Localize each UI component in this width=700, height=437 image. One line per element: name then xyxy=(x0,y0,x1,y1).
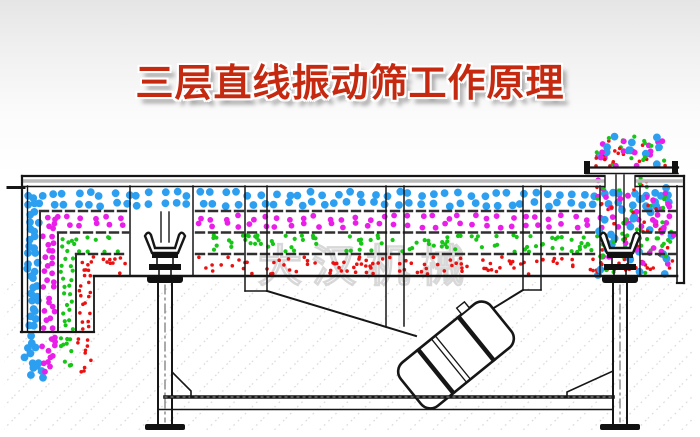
particle-dot-green xyxy=(253,242,257,246)
particle-dot-magenta xyxy=(274,215,280,221)
particle-dot-green xyxy=(551,246,555,250)
particle-dot-green xyxy=(359,242,363,246)
particle-dot-blue xyxy=(544,190,552,198)
particle-dot-magenta xyxy=(667,213,673,219)
particle-dot-blue xyxy=(653,134,661,142)
particle-dot-red xyxy=(481,258,485,262)
particle-dot-green xyxy=(349,249,353,253)
particle-dot-red xyxy=(553,257,557,261)
particle-dot-red xyxy=(423,263,427,267)
particle-dot-green xyxy=(470,234,474,238)
particle-dot-blue xyxy=(294,192,302,200)
particle-dot-blue xyxy=(270,201,278,209)
particle-dot-green xyxy=(214,236,218,240)
particle-dot-magenta xyxy=(235,224,241,230)
particle-dot-green xyxy=(63,360,67,364)
particle-dot-magenta xyxy=(46,348,52,354)
particle-dot-green xyxy=(632,135,636,139)
particle-dot-green xyxy=(314,242,318,246)
particle-dot-red xyxy=(425,267,429,271)
particle-dot-blue xyxy=(250,201,258,209)
particle-dot-green xyxy=(67,318,71,322)
particle-dot-green xyxy=(668,240,672,244)
particle-dot-green xyxy=(69,278,73,282)
particle-dot-green xyxy=(511,233,515,237)
particle-dot-blue xyxy=(39,374,47,382)
particle-dot-green xyxy=(635,227,639,231)
particle-dot-green xyxy=(415,241,419,245)
particle-dot-blue xyxy=(162,199,170,207)
particle-dot-green xyxy=(596,197,600,201)
particle-dot-red xyxy=(459,257,463,261)
particle-dot-green xyxy=(69,349,73,353)
particle-dot-red xyxy=(87,295,91,299)
particle-dot-blue xyxy=(321,201,329,209)
particle-dot-blue xyxy=(628,139,636,147)
particle-dot-green xyxy=(60,264,64,268)
particle-dot-green xyxy=(300,234,304,238)
particle-dot-green xyxy=(380,241,384,245)
particle-dot-red xyxy=(113,257,117,261)
particle-dot-green xyxy=(71,327,75,331)
particle-dot-green xyxy=(624,218,628,222)
particle-dot-red xyxy=(86,263,90,267)
particle-dot-blue xyxy=(27,350,35,358)
particle-dot-red xyxy=(81,327,85,331)
particle-dot-red xyxy=(331,261,335,265)
particle-dot-green xyxy=(582,235,586,239)
particle-dot-red xyxy=(342,261,346,265)
particle-dot-blue xyxy=(647,209,655,217)
particle-dot-red xyxy=(482,267,486,271)
particle-dot-red xyxy=(498,266,502,270)
particle-dot-magenta xyxy=(368,217,374,223)
particle-dot-magenta xyxy=(209,224,215,230)
particle-dot-red xyxy=(204,266,208,270)
particle-dot-red xyxy=(371,262,375,266)
particle-dot-green xyxy=(583,245,587,249)
particle-dot-magenta xyxy=(271,224,277,230)
particle-dot-magenta xyxy=(558,221,564,227)
particle-dot-blue xyxy=(533,189,541,197)
particle-dot-green xyxy=(74,237,78,241)
particle-dot-green xyxy=(259,242,263,246)
particle-dot-magenta xyxy=(107,222,113,228)
particle-dot-magenta xyxy=(484,223,490,229)
particle-dot-blue xyxy=(372,191,380,199)
particle-dot-red xyxy=(560,257,564,261)
particle-dot-red xyxy=(591,269,595,273)
particle-dot-red xyxy=(603,158,607,162)
particle-dot-green xyxy=(94,238,98,242)
particle-dot-magenta xyxy=(316,224,322,230)
particle-dot-red xyxy=(82,369,86,373)
particle-dot-green xyxy=(660,220,664,224)
particle-dot-red xyxy=(295,270,299,274)
particle-dot-red xyxy=(613,149,617,153)
particle-dot-magenta xyxy=(196,221,202,227)
particle-dot-blue xyxy=(567,199,575,207)
particle-dot-red xyxy=(388,256,392,260)
particle-dot-blue xyxy=(112,189,120,197)
vibrating-screen-diagram: 大汉机械 xyxy=(0,0,700,437)
particle-dot-magenta xyxy=(603,194,609,200)
particle-dot-magenta xyxy=(429,213,435,219)
particle-dot-red xyxy=(571,263,575,267)
particle-dot-red xyxy=(337,266,341,270)
particle-dot-red xyxy=(79,284,83,288)
particle-dot-magenta xyxy=(47,364,53,370)
particle-dot-blue xyxy=(35,219,43,227)
particle-dot-magenta xyxy=(454,213,460,219)
particle-dot-magenta xyxy=(49,270,55,276)
particle-dot-green xyxy=(643,155,647,159)
particle-dot-blue xyxy=(31,249,39,257)
particle-dot-red xyxy=(668,266,672,270)
particle-dot-red xyxy=(88,312,92,316)
particle-dot-green xyxy=(67,308,71,312)
particle-dot-red xyxy=(86,344,90,348)
particle-dot-green xyxy=(474,238,478,242)
particle-dot-blue xyxy=(132,192,140,200)
particle-dot-blue xyxy=(441,189,449,197)
particle-dot-magenta xyxy=(207,217,213,223)
particle-dot-green xyxy=(106,235,110,239)
particle-dot-red xyxy=(671,259,675,263)
particle-dot-magenta xyxy=(617,196,623,202)
particle-dot-green xyxy=(249,241,253,245)
particle-dot-magenta xyxy=(51,240,57,246)
particle-dot-green xyxy=(68,292,72,296)
particle-dot-blue xyxy=(651,189,659,197)
particle-dot-blue xyxy=(285,198,293,206)
particle-dot-green xyxy=(270,239,274,243)
particle-dot-red xyxy=(595,156,599,160)
particle-dot-magenta xyxy=(535,222,541,228)
particle-dot-red xyxy=(398,262,402,266)
particle-dot-red xyxy=(519,262,523,266)
particle-dot-magenta xyxy=(45,242,51,248)
particle-dot-blue xyxy=(589,201,597,209)
particle-dot-green xyxy=(643,271,647,275)
particle-dot-blue xyxy=(200,200,208,208)
particle-dot-green xyxy=(528,234,532,238)
particle-dot-green xyxy=(257,238,261,242)
particle-dot-green xyxy=(358,248,362,252)
particle-dot-blue xyxy=(395,201,403,209)
particle-dot-green xyxy=(69,363,73,367)
particle-dot-magenta xyxy=(52,217,58,223)
particle-dot-green xyxy=(63,319,67,323)
particle-dot-red xyxy=(376,261,380,265)
particle-dot-magenta xyxy=(498,225,504,231)
particle-dot-red xyxy=(83,274,87,278)
particle-dot-magenta xyxy=(287,217,293,223)
particle-dot-red xyxy=(237,258,241,262)
particle-dot-blue xyxy=(31,233,39,241)
particle-dot-magenta xyxy=(40,284,46,290)
particle-dot-red xyxy=(443,269,447,273)
particle-dot-magenta xyxy=(509,224,515,230)
particle-dot-blue xyxy=(208,200,216,208)
particle-dot-blue xyxy=(222,188,230,196)
particle-dot-red xyxy=(313,261,317,265)
particle-dot-green xyxy=(68,337,72,341)
particle-dot-magenta xyxy=(50,248,56,254)
particle-dot-green xyxy=(311,234,315,238)
particle-dot-red xyxy=(570,258,574,262)
particle-dot-blue xyxy=(446,203,454,211)
particle-dot-red xyxy=(119,256,123,260)
particle-dot-magenta xyxy=(433,225,439,231)
particle-dot-blue xyxy=(335,191,343,199)
particle-dot-green xyxy=(292,249,296,253)
particle-dot-green xyxy=(595,150,599,154)
particle-dot-blue xyxy=(32,315,40,323)
particle-dot-green xyxy=(229,241,233,245)
particle-dot-magenta xyxy=(377,221,383,227)
particle-dot-red xyxy=(282,263,286,267)
particle-dot-magenta xyxy=(52,335,58,341)
particle-dot-blue xyxy=(30,322,38,330)
particle-dot-green xyxy=(570,238,574,242)
particle-dot-magenta xyxy=(391,213,397,219)
particle-dot-red xyxy=(381,257,385,261)
particle-dot-green xyxy=(71,256,75,260)
particle-dot-red xyxy=(410,261,414,265)
particle-dot-green xyxy=(410,246,414,250)
particle-dot-red xyxy=(86,320,90,324)
particle-dot-blue xyxy=(307,188,315,196)
particle-dot-blue xyxy=(384,192,392,200)
particle-dot-blue xyxy=(174,188,182,196)
particle-dot-red xyxy=(354,270,358,274)
particle-dot-red xyxy=(83,301,87,305)
particle-dot-magenta xyxy=(42,268,48,274)
particle-dot-red xyxy=(364,264,368,268)
particle-dot-green xyxy=(662,159,666,163)
particle-dot-green xyxy=(60,244,64,248)
particle-dot-blue xyxy=(133,202,141,210)
particle-dot-blue xyxy=(629,201,637,209)
particle-dot-red xyxy=(78,311,82,315)
particle-dot-blue xyxy=(357,191,365,199)
particle-dot-red xyxy=(105,260,109,264)
particle-dot-blue xyxy=(509,202,517,210)
particle-dot-blue xyxy=(601,216,609,224)
particle-dot-blue xyxy=(482,192,490,200)
particle-dot-green xyxy=(661,206,665,210)
particle-dot-red xyxy=(352,266,356,270)
particle-dot-green xyxy=(212,248,216,252)
particle-dot-blue xyxy=(520,190,528,198)
particle-dot-magenta xyxy=(77,215,83,221)
particle-dot-green xyxy=(556,235,560,239)
particle-dot-red xyxy=(87,325,91,329)
particle-dot-magenta xyxy=(532,214,538,220)
particle-dot-magenta xyxy=(310,213,316,219)
particle-dot-blue xyxy=(405,199,413,207)
particle-dot-blue xyxy=(95,192,103,200)
particle-dot-magenta xyxy=(546,224,552,230)
particle-dot-green xyxy=(253,234,257,238)
particle-dot-magenta xyxy=(49,255,55,261)
particle-dot-red xyxy=(436,263,440,267)
particle-dot-blue xyxy=(343,198,351,206)
particle-dot-red xyxy=(486,269,490,273)
particle-dot-green xyxy=(64,323,68,327)
particle-dot-green xyxy=(423,238,427,242)
particle-dot-blue xyxy=(308,198,316,206)
particle-dot-magenta xyxy=(447,216,453,222)
particle-dot-red xyxy=(420,270,424,274)
particle-dot-blue xyxy=(173,199,181,207)
particle-dot-red xyxy=(340,269,344,273)
particle-dot-blue xyxy=(370,198,378,206)
particle-dot-green xyxy=(494,234,498,238)
particle-dot-magenta xyxy=(625,193,631,199)
particle-dot-magenta xyxy=(49,234,55,240)
particle-dot-green xyxy=(66,240,70,244)
particle-dot-blue xyxy=(113,199,121,207)
particle-dot-red xyxy=(646,204,650,208)
particle-dot-blue xyxy=(607,231,615,239)
particle-dot-blue xyxy=(49,190,57,198)
particle-dot-red xyxy=(81,320,85,324)
particle-dot-red xyxy=(618,147,622,151)
particle-dot-blue xyxy=(273,191,281,199)
particle-dot-magenta xyxy=(523,223,529,229)
particle-dot-blue xyxy=(162,188,170,196)
particle-dot-blue xyxy=(222,202,230,210)
particle-dot-red xyxy=(197,255,201,259)
particle-dot-blue xyxy=(75,200,83,208)
particle-dot-green xyxy=(67,284,71,288)
particle-dot-red xyxy=(509,262,513,266)
particle-dot-magenta xyxy=(50,304,56,310)
particle-dot-red xyxy=(631,211,635,215)
particle-dot-green xyxy=(493,244,497,248)
particle-dot-green xyxy=(607,136,611,140)
particle-dot-green xyxy=(63,257,67,261)
particle-dot-green xyxy=(445,235,449,239)
particle-dot-blue xyxy=(655,143,663,151)
particle-dot-blue xyxy=(257,191,265,199)
particle-dot-red xyxy=(92,255,96,259)
particle-dot-green xyxy=(629,156,633,160)
particle-dot-magenta xyxy=(48,355,54,361)
particle-dot-green xyxy=(662,197,666,201)
particle-dot-red xyxy=(555,262,559,266)
particle-dot-green xyxy=(432,244,436,248)
particle-dot-blue xyxy=(430,190,438,198)
particle-dot-magenta xyxy=(67,222,73,228)
particle-dot-green xyxy=(85,235,89,239)
particle-dot-red xyxy=(226,255,230,259)
particle-dot-blue xyxy=(531,198,539,206)
particle-dot-magenta xyxy=(103,214,109,220)
particle-dot-green xyxy=(643,141,647,145)
particle-dot-blue xyxy=(492,189,500,197)
particle-dot-blue xyxy=(96,203,104,211)
particle-dot-magenta xyxy=(50,325,56,331)
particle-dot-red xyxy=(666,246,670,250)
particle-dot-magenta xyxy=(352,215,358,221)
particle-dot-red xyxy=(638,160,642,164)
particle-dot-red xyxy=(535,260,539,264)
particle-dot-blue xyxy=(581,191,589,199)
particle-dot-blue xyxy=(330,199,338,207)
particle-dot-red xyxy=(432,255,436,259)
particle-dot-blue xyxy=(76,190,84,198)
particle-dot-green xyxy=(59,270,63,274)
particle-dot-red xyxy=(79,294,83,298)
particle-dot-red xyxy=(210,263,214,267)
particle-dot-green xyxy=(369,238,373,242)
particle-dot-red xyxy=(465,265,469,269)
particle-dot-blue xyxy=(430,200,438,208)
particle-dot-green xyxy=(229,245,233,249)
particle-dot-magenta xyxy=(558,212,564,218)
particle-dot-green xyxy=(440,244,444,248)
particle-dot-red xyxy=(231,264,235,268)
particle-dot-magenta xyxy=(405,223,411,229)
particle-dot-magenta xyxy=(339,217,345,223)
particle-dot-blue xyxy=(299,202,307,210)
particle-dot-green xyxy=(655,236,659,240)
particle-dot-red xyxy=(398,269,402,273)
particle-dot-magenta xyxy=(118,215,124,221)
particle-dot-blue xyxy=(638,195,646,203)
particle-dot-red xyxy=(460,262,464,266)
particle-dot-green xyxy=(391,238,395,242)
particle-dot-magenta xyxy=(45,215,51,221)
particle-dot-green xyxy=(662,242,666,246)
particle-dot-magenta xyxy=(546,217,552,223)
particle-dot-red xyxy=(489,262,493,266)
particle-dot-red xyxy=(108,258,112,262)
particle-dot-blue xyxy=(454,189,462,197)
particle-dot-magenta xyxy=(225,220,231,226)
particle-dot-green xyxy=(456,234,460,238)
particle-dot-blue xyxy=(232,188,240,196)
particle-dot-red xyxy=(118,271,122,275)
particle-dot-red xyxy=(512,266,516,270)
infographic: 三层直线振动筛工作原理 大汉机械 xyxy=(0,0,700,437)
particle-dot-blue xyxy=(60,201,68,209)
particle-dot-green xyxy=(65,303,69,307)
particle-dot-magenta xyxy=(650,197,656,203)
particle-dot-red xyxy=(86,338,90,342)
particle-dot-blue xyxy=(27,371,35,379)
particle-dot-blue xyxy=(625,146,633,154)
particle-dot-red xyxy=(111,261,115,265)
particle-dot-magenta xyxy=(473,212,479,218)
particle-dot-blue xyxy=(358,198,366,206)
particle-dot-green xyxy=(560,247,564,251)
particle-dot-magenta xyxy=(340,225,346,231)
particle-dot-magenta xyxy=(404,213,410,219)
particle-dot-green xyxy=(70,300,74,304)
particle-dot-magenta xyxy=(610,214,616,220)
particle-dot-green xyxy=(625,233,629,237)
particle-dot-red xyxy=(416,271,420,275)
particle-dot-magenta xyxy=(301,216,307,222)
particle-dot-blue xyxy=(457,200,465,208)
particle-dot-green xyxy=(61,311,65,315)
particle-dot-red xyxy=(90,260,94,264)
particle-dot-red xyxy=(306,259,310,263)
